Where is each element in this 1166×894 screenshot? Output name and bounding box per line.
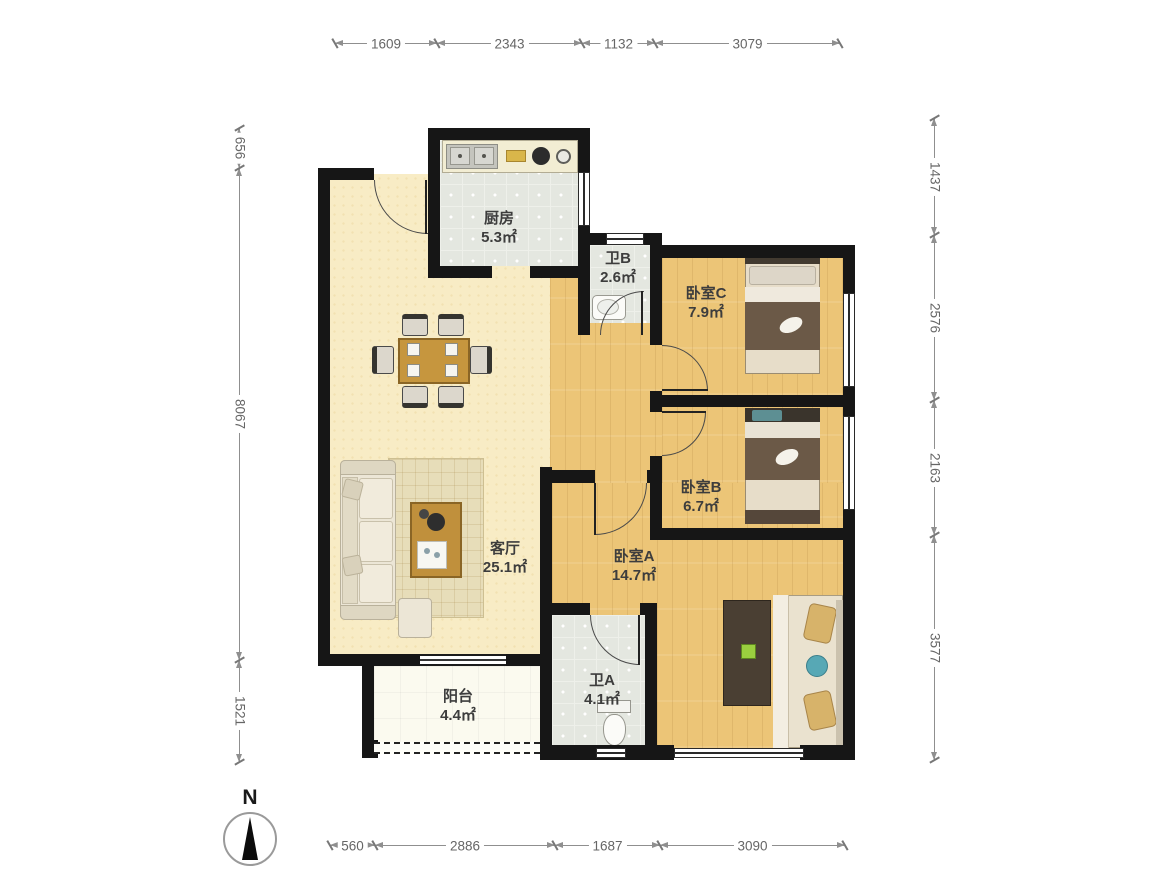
dim-value: 8067: [232, 395, 247, 433]
sofa-armrest: [340, 460, 396, 475]
dim-value: 3577: [927, 628, 942, 666]
room-area: 25.1㎡: [483, 558, 527, 577]
room-area: 6.7㎡: [681, 497, 722, 516]
dim-value: 1521: [232, 692, 247, 730]
dim-top-1: 1609: [335, 36, 437, 52]
room-name: 阳台: [440, 687, 476, 706]
wall-segment: [362, 666, 374, 742]
floor-plan: 厨房 5.3㎡ 卫B 2.6㎡ 卧室C 7.9㎡ 卧室B 6.7㎡ 客厅 25.…: [0, 0, 1166, 894]
bed-a-lamp: [806, 655, 828, 677]
dim-bottom-3: 1687: [555, 838, 660, 854]
sofa-cushion: [359, 521, 393, 562]
wall-segment: [648, 745, 674, 760]
dining-chair: [438, 314, 464, 336]
wardrobe-accent: [741, 644, 756, 659]
wall-segment: [843, 510, 855, 760]
dim-value: 3090: [733, 838, 771, 853]
window: [843, 416, 855, 510]
stove-burner: [532, 147, 550, 165]
dim-left-2: 8067: [232, 168, 248, 660]
bed-b-sheet: [745, 422, 820, 438]
dining-chair: [402, 314, 428, 336]
wall-segment: [318, 654, 418, 666]
wall-segment: [650, 258, 662, 345]
drain: [482, 154, 486, 158]
bed-b-pillow: [752, 410, 782, 421]
dim-right-2: 2576: [927, 235, 943, 400]
wall-segment: [650, 528, 855, 540]
room-label-bathroom-a: 卫A 4.1㎡: [584, 671, 620, 709]
wall-segment: [650, 407, 662, 412]
sofa-armrest: [340, 605, 396, 620]
room-name: 卧室A: [612, 547, 656, 566]
room-area: 14.7㎡: [612, 566, 656, 585]
wall-segment: [318, 168, 374, 180]
wall-segment: [428, 128, 590, 140]
plate: [445, 343, 458, 356]
wall-segment: [414, 654, 420, 666]
room-area: 4.1㎡: [584, 690, 620, 709]
room-name: 卧室C: [686, 284, 727, 303]
entry-door-leaf: [425, 180, 427, 234]
room-label-bathroom-b: 卫B 2.6㎡: [600, 249, 636, 287]
bathroom-b-door-leaf: [641, 291, 643, 335]
room-name: 卧室B: [681, 478, 722, 497]
room-area: 2.6㎡: [600, 268, 636, 287]
window: [606, 233, 644, 245]
dim-left-3: 1521: [232, 660, 248, 762]
balcony-window-dashed: [374, 742, 540, 754]
window: [578, 172, 590, 226]
wall-segment: [428, 266, 492, 278]
north-arrow-icon: [242, 817, 258, 860]
dim-left-1: 656: [232, 128, 248, 168]
kettle: [427, 513, 445, 531]
room-name: 卫B: [600, 249, 636, 268]
stove-burner: [556, 149, 571, 164]
tray: [417, 541, 447, 569]
dim-bottom-4: 3090: [660, 838, 845, 854]
dining-chair: [438, 386, 464, 408]
dim-top-2: 2343: [437, 36, 582, 52]
dim-value: 1437: [927, 157, 942, 195]
north-label: N: [219, 787, 281, 809]
north-compass: N: [219, 787, 281, 866]
dim-value: 2163: [927, 448, 942, 486]
room-label-bedroom-b: 卧室B 6.7㎡: [681, 478, 722, 516]
wall-segment: [552, 603, 590, 615]
cup: [434, 552, 440, 558]
drain: [458, 154, 462, 158]
cup: [424, 548, 430, 554]
bathroom-a-door-leaf: [638, 615, 640, 665]
plate: [407, 364, 420, 377]
room-label-kitchen: 厨房 5.3㎡: [481, 209, 517, 247]
dim-value: 2886: [446, 838, 484, 853]
cutting-board: [506, 150, 526, 162]
dim-bottom-1: 560: [330, 838, 375, 854]
wall-segment: [318, 168, 330, 666]
wall-segment: [578, 226, 590, 335]
wall-segment: [590, 233, 606, 245]
compass-circle: [223, 812, 277, 866]
room-name: 厨房: [481, 209, 517, 228]
plate: [407, 343, 420, 356]
room-area: 5.3㎡: [481, 228, 517, 247]
dim-right-1: 1437: [927, 118, 943, 235]
wall-segment: [843, 245, 855, 293]
wall-segment: [530, 266, 578, 278]
dim-right-3: 2163: [927, 400, 943, 535]
bedroom-c-door-leaf: [662, 389, 708, 391]
bed-c-pillow: [749, 266, 816, 285]
sofa-cushion: [359, 564, 393, 603]
wall-segment: [800, 745, 855, 760]
room-area: 4.4㎡: [440, 706, 476, 725]
dim-value: 656: [232, 133, 247, 164]
bed-a-sheet: [773, 595, 789, 748]
dim-value: 1132: [600, 36, 637, 51]
room-label-bedroom-a: 卧室A 14.7㎡: [612, 547, 656, 585]
wall-segment: [644, 233, 662, 245]
wall-segment: [647, 470, 662, 483]
room-name: 客厅: [483, 539, 527, 558]
dim-value: 560: [337, 838, 368, 853]
bed-b-foot: [745, 510, 820, 524]
ottoman: [398, 598, 432, 638]
sliding-door-track: [418, 659, 510, 661]
dim-top-4: 3079: [655, 36, 840, 52]
dim-bottom-2: 2886: [375, 838, 555, 854]
wall-segment: [510, 654, 552, 666]
wall-segment: [506, 654, 512, 666]
dim-value: 1609: [367, 36, 405, 51]
plate: [445, 364, 458, 377]
window: [596, 748, 626, 758]
bedroom-b-door-leaf: [662, 411, 706, 413]
wall-segment: [645, 603, 657, 748]
bed-a-headboard: [836, 600, 843, 745]
dining-chair: [402, 386, 428, 408]
dining-chair: [470, 346, 492, 374]
throw-pillow: [341, 554, 363, 576]
teapot: [419, 509, 429, 519]
dim-right-4: 3577: [927, 535, 943, 760]
wall-segment: [578, 128, 590, 172]
dim-value: 2343: [490, 36, 528, 51]
window: [674, 748, 804, 758]
room-label-balcony: 阳台 4.4㎡: [440, 687, 476, 725]
bed-c-sheet: [745, 287, 820, 302]
room-label-living: 客厅 25.1㎡: [483, 539, 527, 577]
room-area: 7.9㎡: [686, 303, 727, 322]
dining-chair: [372, 346, 394, 374]
dim-value: 1687: [588, 838, 626, 853]
room-label-bedroom-c: 卧室C 7.9㎡: [686, 284, 727, 322]
dim-value: 2576: [927, 298, 942, 336]
wall-segment: [428, 128, 440, 278]
wall-segment: [540, 467, 552, 758]
dim-value: 3079: [728, 36, 766, 51]
toilet-bowl: [603, 714, 626, 746]
dim-top-3: 1132: [582, 36, 655, 52]
room-name: 卫A: [584, 671, 620, 690]
wall-segment: [650, 245, 855, 258]
window: [843, 293, 855, 387]
sofa-cushion: [359, 478, 393, 519]
wall-segment: [650, 395, 855, 407]
bedroom-a-door-leaf: [594, 483, 596, 535]
